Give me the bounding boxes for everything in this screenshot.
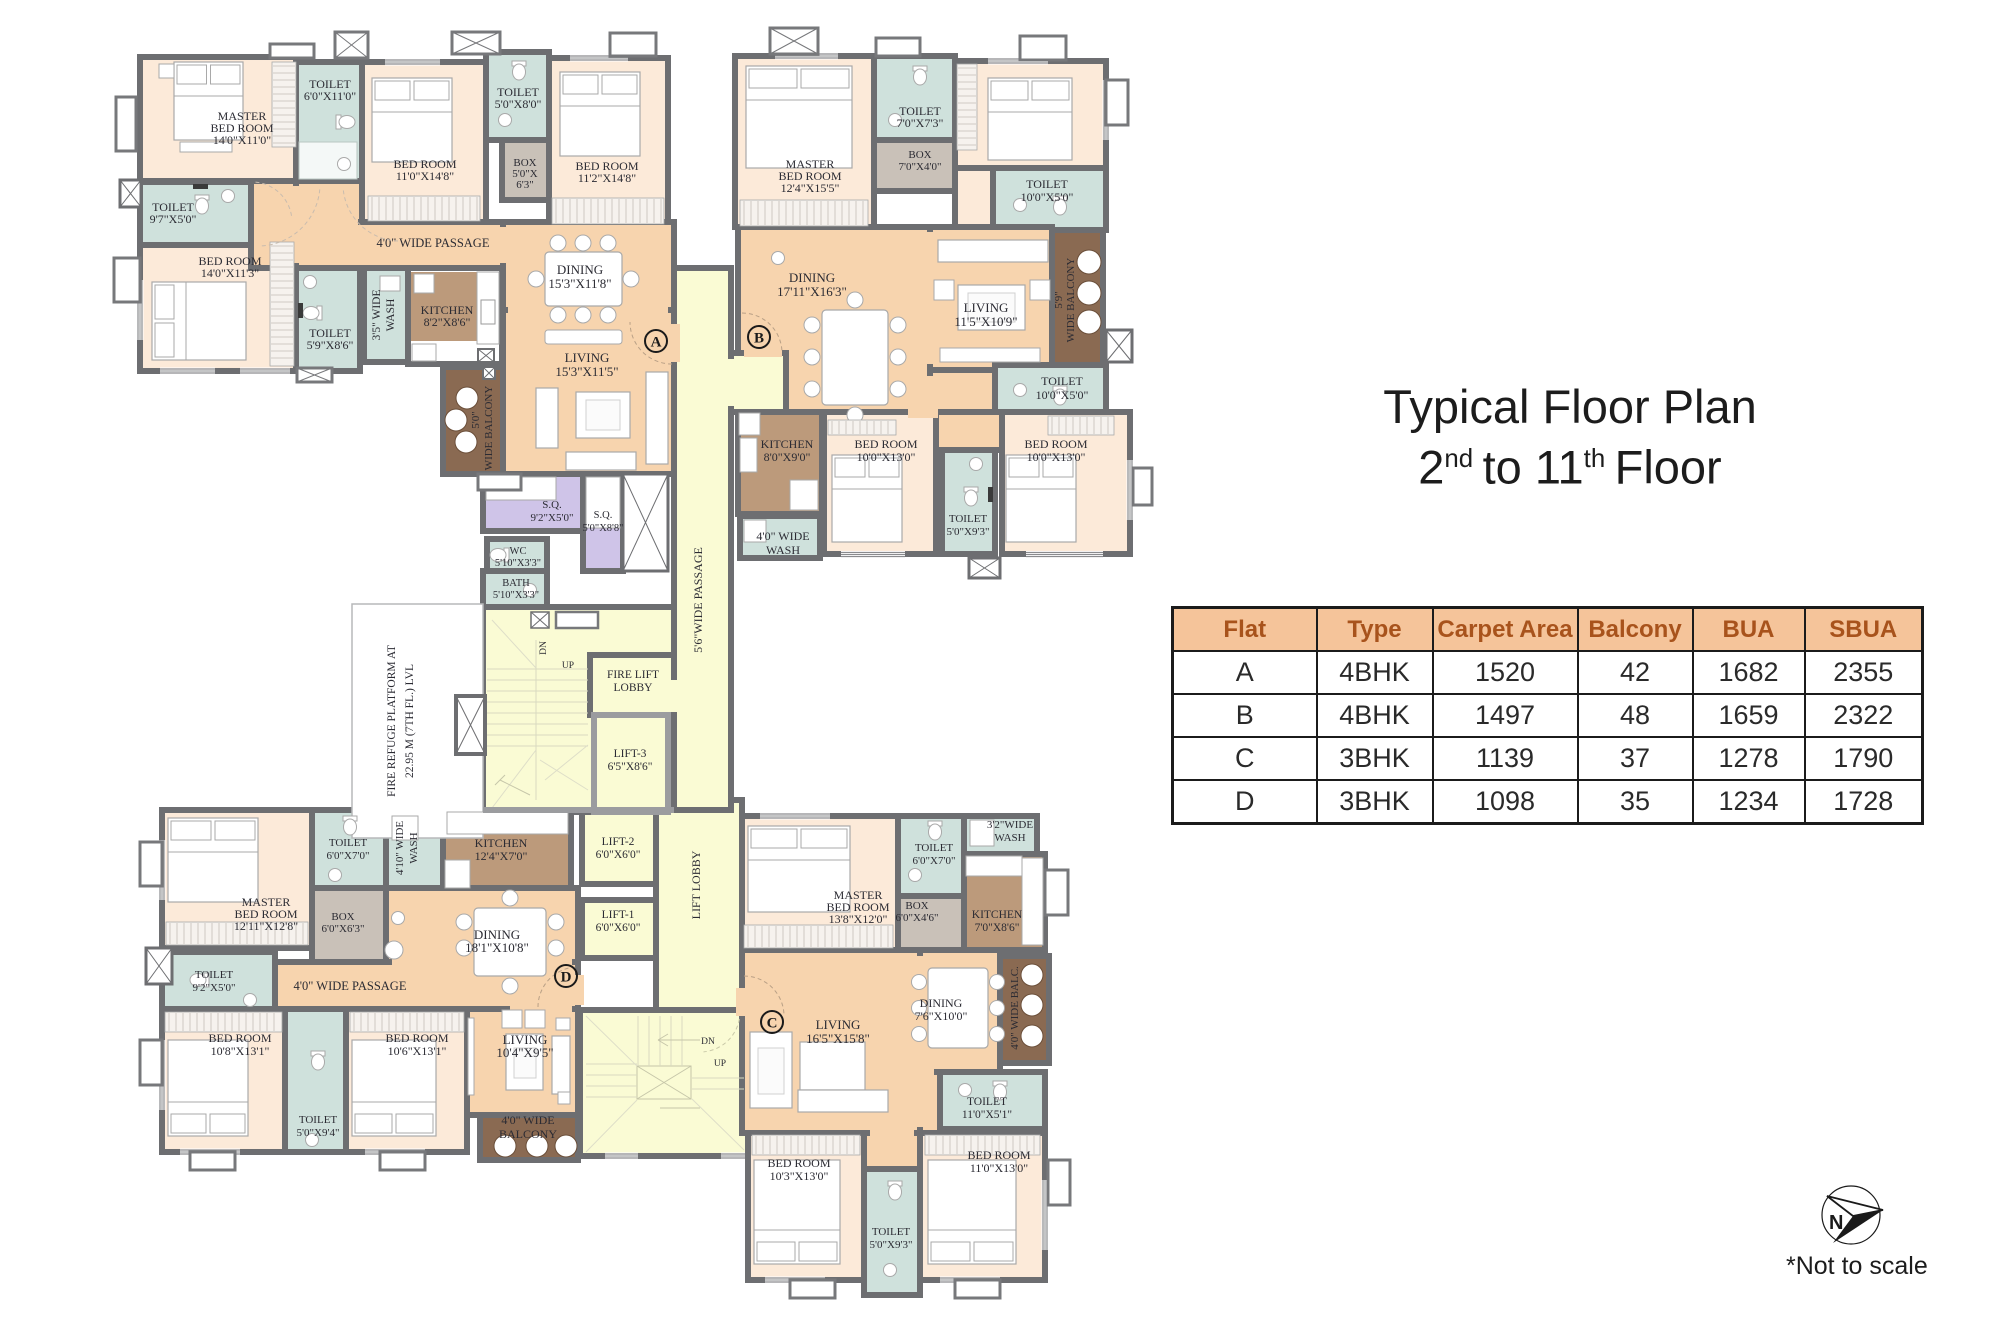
svg-text:WASH: WASH — [408, 832, 420, 863]
svg-text:C: C — [767, 1016, 778, 1032]
svg-text:6'0"X11'0": 6'0"X11'0" — [304, 89, 356, 103]
svg-text:8'2"X8'6": 8'2"X8'6" — [424, 315, 471, 329]
svg-text:16'5"X15'8": 16'5"X15'8" — [806, 1031, 870, 1046]
svg-text:13'8"X12'0": 13'8"X12'0" — [829, 912, 888, 926]
svg-text:7'0"X7'3": 7'0"X7'3" — [897, 116, 944, 130]
svg-text:B: B — [754, 331, 764, 347]
svg-text:KITCHEN: KITCHEN — [475, 836, 528, 850]
svg-text:BOX: BOX — [905, 900, 928, 912]
svg-text:10'8"X13'1": 10'8"X13'1" — [211, 1044, 270, 1058]
svg-text:9'7"X5'0": 9'7"X5'0" — [150, 212, 197, 226]
svg-text:LOBBY: LOBBY — [614, 682, 654, 694]
svg-text:BOX: BOX — [908, 149, 931, 161]
svg-text:TOILET: TOILET — [195, 969, 234, 981]
svg-text:BATH: BATH — [502, 578, 530, 589]
svg-text:KITCHEN: KITCHEN — [972, 909, 1023, 921]
svg-text:5'0"X8'8": 5'0"X8'8" — [583, 523, 624, 534]
svg-text:10'3"X13'0": 10'3"X13'0" — [770, 1169, 829, 1183]
svg-text:DINING: DINING — [920, 996, 963, 1010]
svg-text:BOX: BOX — [331, 911, 354, 923]
svg-text:BALCONY: BALCONY — [499, 1127, 557, 1141]
svg-text:5'0"X8'0": 5'0"X8'0" — [495, 97, 542, 111]
svg-text:10'0"X5'0": 10'0"X5'0" — [1021, 190, 1074, 204]
svg-text:3'2"WIDE: 3'2"WIDE — [987, 819, 1033, 831]
svg-text:LIFT-2: LIFT-2 — [602, 836, 635, 848]
svg-text:WIDE BALCONY: WIDE BALCONY — [1065, 258, 1077, 343]
svg-text:4'0" WIDE: 4'0" WIDE — [501, 1113, 554, 1127]
svg-text:22.95 M (7TH FL.) LVL: 22.95 M (7TH FL.) LVL — [404, 664, 416, 778]
svg-text:LIFT-3: LIFT-3 — [614, 748, 647, 760]
svg-text:11'0"X14'8": 11'0"X14'8" — [396, 169, 454, 183]
svg-text:12'4"X15'5": 12'4"X15'5" — [781, 181, 840, 195]
svg-text:5'0": 5'0" — [470, 411, 482, 428]
svg-text:TOILET: TOILET — [967, 1096, 1007, 1108]
svg-text:8'0"X9'0": 8'0"X9'0" — [764, 450, 811, 464]
svg-text:WASH: WASH — [766, 543, 800, 557]
svg-text:6'0"X4'6": 6'0"X4'6" — [896, 912, 939, 924]
svg-text:TOILET: TOILET — [1041, 374, 1083, 388]
svg-text:10'6"X13'1": 10'6"X13'1" — [388, 1044, 447, 1058]
svg-text:TOILET: TOILET — [299, 1114, 338, 1126]
svg-text:UP: UP — [562, 661, 574, 671]
svg-text:FIRE LIFT: FIRE LIFT — [607, 669, 659, 681]
svg-text:TOILET: TOILET — [329, 837, 368, 849]
svg-text:WASH: WASH — [385, 299, 397, 332]
svg-text:BED ROOM: BED ROOM — [385, 1031, 448, 1045]
svg-text:DN: DN — [701, 1037, 715, 1047]
svg-text:5'9"X8'6": 5'9"X8'6" — [307, 338, 354, 352]
svg-text:4'0" WIDE PASSAGE: 4'0" WIDE PASSAGE — [377, 236, 490, 250]
svg-text:11'2"X14'8": 11'2"X14'8" — [578, 171, 636, 185]
svg-text:12'4"X7'0": 12'4"X7'0" — [475, 849, 528, 863]
svg-text:6'0"X6'0": 6'0"X6'0" — [596, 849, 641, 861]
svg-text:LIVING: LIVING — [816, 1017, 861, 1032]
svg-text:6'0"X6'3": 6'0"X6'3" — [322, 923, 365, 935]
svg-text:DINING: DINING — [557, 262, 603, 277]
svg-text:FIRE REFUGE PLATFORM AT: FIRE REFUGE PLATFORM AT — [386, 645, 398, 797]
svg-text:5'0"X9'3": 5'0"X9'3" — [947, 526, 990, 538]
svg-text:4'10" WIDE: 4'10" WIDE — [394, 821, 406, 876]
svg-text:10'0"X13'0": 10'0"X13'0" — [857, 450, 916, 464]
svg-text:18'1"X10'8": 18'1"X10'8" — [465, 940, 529, 955]
svg-text:10'0"X5'0": 10'0"X5'0" — [1036, 388, 1089, 402]
svg-text:14'0"X11'3": 14'0"X11'3" — [201, 266, 259, 280]
svg-text:6'0"X6'0": 6'0"X6'0" — [596, 922, 641, 934]
svg-text:5'6"WIDE PASSAGE: 5'6"WIDE PASSAGE — [691, 547, 705, 653]
svg-text:6'5"X8'6": 6'5"X8'6" — [608, 761, 653, 773]
svg-text:BED ROOM: BED ROOM — [208, 1031, 271, 1045]
svg-text:WC: WC — [510, 546, 527, 557]
svg-text:17'11"X16'3": 17'11"X16'3" — [777, 284, 847, 299]
svg-text:BED ROOM: BED ROOM — [967, 1148, 1030, 1162]
svg-text:LIVING: LIVING — [964, 300, 1009, 315]
svg-text:4'0" WIDE PASSAGE: 4'0" WIDE PASSAGE — [294, 979, 407, 993]
svg-text:TOILET: TOILET — [949, 513, 988, 525]
svg-text:UP: UP — [714, 1059, 726, 1069]
svg-text:9'2"X5'0": 9'2"X5'0" — [193, 982, 236, 994]
svg-text:N: N — [1829, 1212, 1843, 1234]
svg-text:5'10"X3'3": 5'10"X3'3" — [495, 558, 541, 569]
svg-text:BED ROOM: BED ROOM — [1024, 437, 1087, 451]
svg-text:10'4"X9'5": 10'4"X9'5" — [496, 1045, 553, 1060]
svg-text:S.Q.: S.Q. — [594, 510, 613, 521]
svg-text:LIVING: LIVING — [565, 350, 610, 365]
svg-text:5'10"X3'3": 5'10"X3'3" — [493, 590, 539, 601]
svg-text:4'0" WIDE: 4'0" WIDE — [756, 529, 809, 543]
svg-text:14'0"X11'0": 14'0"X11'0" — [213, 133, 271, 147]
svg-text:15'3"X11'8": 15'3"X11'8" — [548, 276, 611, 291]
svg-text:LIFT-1: LIFT-1 — [602, 909, 635, 921]
svg-text:TOILET: TOILET — [915, 842, 954, 854]
svg-text:A: A — [651, 335, 662, 351]
svg-text:11'5"X10'9": 11'5"X10'9" — [954, 314, 1017, 329]
svg-text:7'6"X10'0": 7'6"X10'0" — [915, 1009, 968, 1023]
svg-text:BED ROOM: BED ROOM — [767, 1156, 830, 1170]
svg-text:D: D — [561, 970, 572, 986]
svg-text:6'0"X7'0": 6'0"X7'0" — [327, 850, 370, 862]
svg-text:12'11"X12'8": 12'11"X12'8" — [234, 919, 298, 933]
svg-text:9'2"X5'0": 9'2"X5'0" — [531, 512, 574, 524]
svg-text:5'9": 5'9" — [1053, 291, 1065, 308]
svg-text:10'0"X13'0": 10'0"X13'0" — [1027, 450, 1086, 464]
svg-text:LIFT LOBBY: LIFT LOBBY — [689, 850, 703, 919]
svg-text:KITCHEN: KITCHEN — [761, 437, 814, 451]
svg-text:7'0"X8'6": 7'0"X8'6" — [975, 922, 1020, 934]
svg-text:5'0"X9'4": 5'0"X9'4" — [297, 1127, 340, 1139]
svg-text:3'5" WIDE: 3'5" WIDE — [371, 290, 383, 341]
svg-text:4'0" WIDE BALC.: 4'0" WIDE BALC. — [1009, 966, 1021, 1050]
svg-text:S.Q.: S.Q. — [542, 499, 562, 511]
svg-text:6'0"X7'0": 6'0"X7'0" — [913, 855, 956, 867]
svg-text:TOILET: TOILET — [872, 1226, 911, 1238]
svg-text:6'3": 6'3" — [516, 179, 533, 191]
svg-text:7'0"X4'0": 7'0"X4'0" — [899, 161, 942, 173]
svg-text:DN: DN — [539, 641, 549, 655]
svg-text:DINING: DINING — [789, 270, 835, 285]
svg-text:15'3"X11'5": 15'3"X11'5" — [555, 364, 618, 379]
svg-text:WASH: WASH — [994, 832, 1025, 844]
svg-text:BED ROOM: BED ROOM — [854, 437, 917, 451]
svg-text:11'0"X13'0": 11'0"X13'0" — [970, 1161, 1028, 1175]
svg-text:5'0"X9'3": 5'0"X9'3" — [870, 1239, 913, 1251]
svg-text:11'0"X5'1": 11'0"X5'1" — [962, 1109, 1012, 1121]
svg-text:TOILET: TOILET — [1026, 177, 1068, 191]
svg-text:WIDE BALCONY: WIDE BALCONY — [483, 386, 495, 471]
